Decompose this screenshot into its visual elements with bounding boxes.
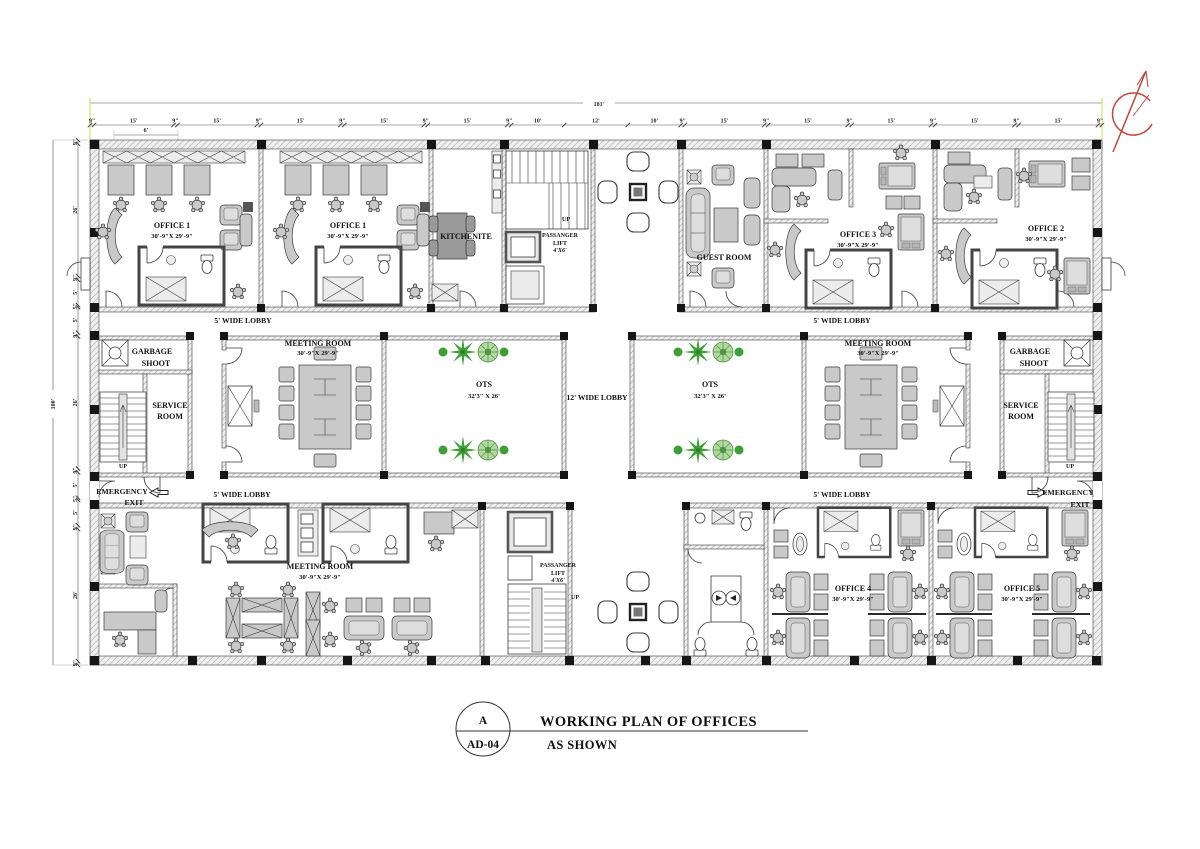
- svg-text:LIFT: LIFT: [553, 241, 567, 247]
- svg-text:9": 9": [73, 524, 79, 530]
- toilet: [694, 638, 706, 657]
- svg-text:9": 9": [680, 119, 686, 125]
- side-table: [802, 154, 824, 167]
- garbage-left-label: GARBAGE: [132, 347, 172, 356]
- svg-text:9": 9": [1013, 119, 1019, 125]
- svg-text:LIFT: LIFT: [551, 571, 565, 577]
- side-table: [243, 202, 253, 212]
- lounge-bottom-left: [100, 512, 167, 654]
- svg-text:EXIT: EXIT: [1070, 500, 1090, 509]
- svg-text:4'X6': 4'X6': [550, 578, 565, 584]
- svg-text:9": 9": [73, 467, 79, 473]
- title-block: A AD-04 WORKING PLAN OF OFFICES AS SHOWN: [456, 702, 808, 756]
- svg-text:15': 15': [297, 119, 305, 125]
- emergency-exit-left-label: EMERGENCY: [96, 487, 148, 496]
- chair: [230, 284, 245, 299]
- armchair: [397, 205, 419, 225]
- side-table: [904, 196, 920, 209]
- desk-unit: [898, 510, 924, 546]
- desk-unit: [879, 163, 915, 189]
- coffee-table: [974, 176, 992, 188]
- lounge-seating-top: [598, 152, 678, 232]
- svg-text:15': 15': [130, 119, 138, 125]
- workstation: [870, 618, 928, 658]
- armchair: [744, 215, 760, 245]
- dining-chair: [429, 240, 438, 256]
- side-table: [948, 152, 970, 164]
- up-label-top: UP: [562, 217, 570, 223]
- svg-text:15': 15': [464, 119, 472, 125]
- shelf-depth-dimension: 6': [144, 128, 149, 134]
- svg-text:10': 10': [650, 119, 658, 125]
- desk-unit: [1064, 258, 1090, 294]
- lamp-table: [101, 514, 115, 528]
- coffee-table: [130, 536, 146, 558]
- workstation: [770, 572, 828, 612]
- coffee-table: [714, 208, 738, 242]
- service-right-label: SERVICE: [1003, 401, 1038, 410]
- armchair: [126, 512, 148, 532]
- service-left-label: SERVICE: [152, 401, 187, 410]
- office-1b-size: 30'-9"X 29'-9": [327, 233, 369, 240]
- curved-sofa: [786, 224, 801, 280]
- room-office-3: [767, 145, 924, 308]
- workstation: [870, 572, 928, 612]
- svg-text:15': 15': [804, 119, 812, 125]
- kitchenette-label: KITCHENITE: [440, 232, 492, 241]
- armchair: [998, 168, 1012, 200]
- room-office-2: [938, 152, 1090, 308]
- svg-text:9": 9": [506, 119, 512, 125]
- appliance: [494, 190, 501, 198]
- side-table: [774, 530, 788, 542]
- armchair: [828, 170, 842, 200]
- svg-text:15': 15': [971, 119, 979, 125]
- toilet: [746, 638, 758, 657]
- side-table: [776, 154, 798, 167]
- svg-text:10': 10': [534, 119, 542, 125]
- desk: [361, 165, 387, 212]
- room-garbage-left: [102, 340, 128, 366]
- toilet-room: [972, 250, 1057, 308]
- svg-text:9": 9": [930, 119, 936, 125]
- bookshelf: [280, 151, 422, 163]
- stove: [494, 170, 501, 178]
- chair: [900, 546, 915, 561]
- desk: [184, 165, 210, 212]
- service-stairs-left: [100, 392, 146, 462]
- toilet-room: [806, 250, 891, 308]
- office-3-label: OFFICE 3: [840, 230, 876, 239]
- meeting-mid-left-label: MEETING ROOM: [285, 339, 352, 348]
- stair-lift-block-top: UP: [506, 151, 588, 304]
- sofa: [686, 188, 710, 258]
- desk-unit: [898, 214, 924, 250]
- workstation-cluster: [226, 582, 298, 653]
- svg-text:9": 9": [73, 139, 79, 145]
- up-label-bottom: UP: [571, 595, 579, 601]
- armchair: [126, 565, 148, 585]
- svg-text:15': 15': [1054, 119, 1062, 125]
- sofa: [944, 183, 962, 211]
- side-table: [1072, 158, 1090, 172]
- room-office-5: [934, 508, 1091, 658]
- svg-text:15': 15': [213, 119, 221, 125]
- desk: [424, 512, 454, 534]
- chair: [966, 189, 981, 204]
- lobby-top-right-label: 5' WIDE LOBBY: [813, 316, 871, 325]
- workstation: [344, 598, 384, 656]
- room-guest: [686, 165, 760, 288]
- side-table: [938, 530, 952, 542]
- cabinet: [155, 590, 167, 612]
- svg-text:9": 9": [846, 119, 852, 125]
- side-table: [886, 196, 902, 209]
- service-stairs-right: [1048, 392, 1094, 462]
- svg-text:9": 9": [73, 660, 79, 666]
- office-1a-label: OFFICE 1: [154, 221, 190, 230]
- conference-table: [279, 347, 371, 467]
- chair: [428, 536, 443, 551]
- office-1b-label: OFFICE 1: [330, 221, 366, 230]
- svg-text:9": 9": [339, 119, 345, 125]
- garbage-right-label: GARBAGE: [1010, 347, 1050, 356]
- room-garbage-right: [1064, 340, 1090, 366]
- workstation: [1034, 618, 1092, 658]
- desk: [323, 165, 349, 212]
- passenger-lift-bottom-label: PASSANGER: [540, 563, 577, 569]
- total-width-dimension: 181': [594, 102, 605, 108]
- workstation: [392, 598, 432, 656]
- planting-ots-left-top: [439, 338, 509, 366]
- svg-text:9": 9": [89, 119, 95, 125]
- svg-text:9": 9": [172, 119, 178, 125]
- lobby-bottom-right-label: 5' WIDE LOBBY: [813, 490, 871, 499]
- workstation: [1034, 572, 1092, 612]
- chair: [938, 246, 953, 261]
- conference-table: [825, 347, 917, 467]
- svg-text:9": 9": [256, 119, 262, 125]
- svg-text:26': 26': [73, 398, 79, 406]
- svg-text:9": 9": [763, 119, 769, 125]
- chair: [112, 632, 127, 647]
- svg-text:4'X6': 4'X6': [552, 248, 567, 254]
- svg-text:12': 12': [592, 119, 600, 125]
- svg-text:32'3" X 26': 32'3" X 26': [694, 393, 726, 400]
- up-service-right: UP: [1066, 464, 1074, 470]
- svg-text:SHOOT: SHOOT: [142, 359, 171, 368]
- left-dimension-chain: 9"26'9"5'5"5'9"26'9"5'5"5'9"26'9": [73, 138, 80, 667]
- bookshelf: [103, 151, 245, 163]
- drawing-scale: AS SHOWN: [547, 738, 617, 752]
- workstation: [934, 618, 992, 658]
- side-table: [1072, 176, 1090, 190]
- lift-lobby: [508, 556, 532, 580]
- room-meeting-mid-right: [825, 347, 964, 467]
- meeting-mid-right-label: MEETING ROOM: [845, 339, 912, 348]
- svg-text:9": 9": [73, 275, 79, 281]
- sofa: [417, 214, 429, 246]
- svg-text:30'-9"X 29'-9": 30'-9"X 29'-9": [297, 350, 339, 357]
- svg-text:9": 9": [423, 119, 429, 125]
- chair: [1047, 266, 1062, 281]
- desk: [146, 165, 172, 212]
- office-3-size: 30'-9"X 29'-9": [837, 242, 879, 249]
- svg-text:5': 5': [73, 290, 79, 295]
- total-height-dimension: 100': [51, 398, 57, 409]
- dining-chair: [429, 216, 438, 232]
- chair: [407, 284, 422, 299]
- l-desk-return: [138, 630, 156, 654]
- curved-sofa: [956, 228, 971, 284]
- svg-text:30'-9"X 29'-9": 30'-9"X 29'-9": [857, 350, 899, 357]
- sofa: [772, 186, 790, 212]
- desk-unit: [1062, 510, 1088, 546]
- toilet-room: [818, 508, 890, 557]
- planting-ots-left-bottom: [439, 436, 509, 464]
- ots-left-label: OTS: [476, 380, 493, 389]
- sofa: [100, 530, 124, 573]
- room-meeting-mid-left: [228, 347, 371, 467]
- side-table: [420, 202, 430, 212]
- guest-room-label: GUEST ROOM: [697, 253, 752, 262]
- toilet-room: [316, 247, 401, 305]
- svg-text:5': 5': [73, 510, 79, 515]
- lounge-seating-bottom: [598, 572, 678, 652]
- emergency-exit-right-label: EMERGENCY: [1042, 488, 1094, 497]
- svg-text:5": 5": [73, 303, 79, 309]
- sofa: [240, 214, 252, 246]
- svg-text:26': 26': [73, 591, 79, 599]
- desk-unit: [1029, 161, 1065, 187]
- svg-text:9": 9": [73, 331, 79, 337]
- sink: [695, 513, 705, 523]
- svg-text:30'-9"X 29'-9": 30'-9"X 29'-9": [1001, 596, 1043, 603]
- armchair: [712, 268, 734, 288]
- sofa: [772, 168, 816, 186]
- svg-text:5": 5": [73, 496, 79, 502]
- central-lobby-label: 12' WIDE LOBBY: [566, 393, 628, 402]
- svg-text:5': 5': [73, 482, 79, 487]
- passenger-lift-top-label: PASSANGER: [542, 233, 579, 239]
- toilet-room: [975, 508, 1047, 557]
- svg-text:30'-9"X 29'-9": 30'-9"X 29'-9": [832, 596, 874, 603]
- meeting-bottom-label: MEETING ROOM: [287, 562, 354, 571]
- side-table: [774, 546, 788, 558]
- drawing-title: WORKING PLAN OF OFFICES: [540, 714, 757, 730]
- desk: [108, 165, 134, 212]
- svg-text:26': 26': [73, 206, 79, 214]
- office-5-label: OFFICE 5: [1004, 584, 1040, 593]
- lobby-bottom-left-label: 5' WIDE LOBBY: [213, 490, 271, 499]
- planting-ots-right-top: [674, 338, 744, 366]
- ots-right-label: OTS: [702, 380, 719, 389]
- svg-text:9": 9": [1097, 119, 1103, 125]
- sheet-number: AD-04: [467, 739, 499, 751]
- up-service-left: UP: [119, 464, 127, 470]
- chair: [1064, 546, 1079, 561]
- armchair: [220, 205, 242, 225]
- office-4-label: OFFICE 4: [835, 584, 871, 593]
- office-1a-size: 30'-9"X 29'-9": [151, 233, 193, 240]
- sink: [494, 155, 501, 163]
- room-kitchenette: [429, 151, 502, 301]
- office-2-size: 30'-9"X 29'-9": [1025, 236, 1067, 243]
- svg-text:15': 15': [721, 119, 729, 125]
- dining-chair: [466, 240, 475, 256]
- svg-text:32'3" X 26': 32'3" X 26': [468, 393, 500, 400]
- toilet-room: [139, 247, 224, 305]
- chair: [225, 534, 240, 549]
- chair: [767, 242, 782, 257]
- svg-text:ROOM: ROOM: [157, 412, 183, 421]
- lobby-top-left-label: 5' WIDE LOBBY: [214, 316, 272, 325]
- lamp-table: [687, 170, 701, 184]
- workstation: [770, 618, 828, 658]
- armchair: [744, 178, 760, 208]
- top-dimension-chain: 9"15'9"15'9"15'9"15'9"15'9"10'12'10'9"15…: [88, 119, 1104, 128]
- chair: [878, 222, 893, 237]
- svg-text:ROOM: ROOM: [1008, 412, 1034, 421]
- svg-text:15': 15': [380, 119, 388, 125]
- toilet: [740, 512, 752, 531]
- north-arrow-icon: [1113, 71, 1152, 152]
- exit-arrow-left-icon: [150, 488, 168, 497]
- utility-rooms: [694, 510, 758, 656]
- detail-letter: A: [479, 715, 488, 727]
- floor-plan-sheet: 181' 100' 9"15'9"15'9"15'9"15'9"15'9"10'…: [0, 0, 1200, 849]
- room-office-4: [770, 508, 927, 658]
- desk: [285, 165, 311, 212]
- chair: [794, 192, 809, 207]
- dining-chair: [466, 216, 475, 232]
- workstation-cluster: [306, 592, 338, 656]
- office-2-label: OFFICE 2: [1028, 224, 1064, 233]
- svg-text:15': 15': [888, 119, 896, 125]
- curved-sofa: [107, 208, 122, 264]
- planting-ots-right-bottom: [674, 436, 744, 464]
- lamp-table: [687, 262, 701, 276]
- svg-text:5': 5': [73, 317, 79, 322]
- svg-text:EXIT: EXIT: [124, 498, 144, 507]
- l-desk: [104, 612, 156, 630]
- svg-text:SHOOT: SHOOT: [1020, 359, 1049, 368]
- workstation: [934, 572, 992, 612]
- side-table: [938, 546, 952, 558]
- toilet-room: [323, 504, 408, 562]
- svg-text:30'-9"X 29'-9": 30'-9"X 29'-9": [299, 574, 341, 581]
- armchair: [712, 165, 734, 185]
- floor-plan-drawing: 181' 100' 9"15'9"15'9"15'9"15'9"15'9"10'…: [0, 0, 1200, 849]
